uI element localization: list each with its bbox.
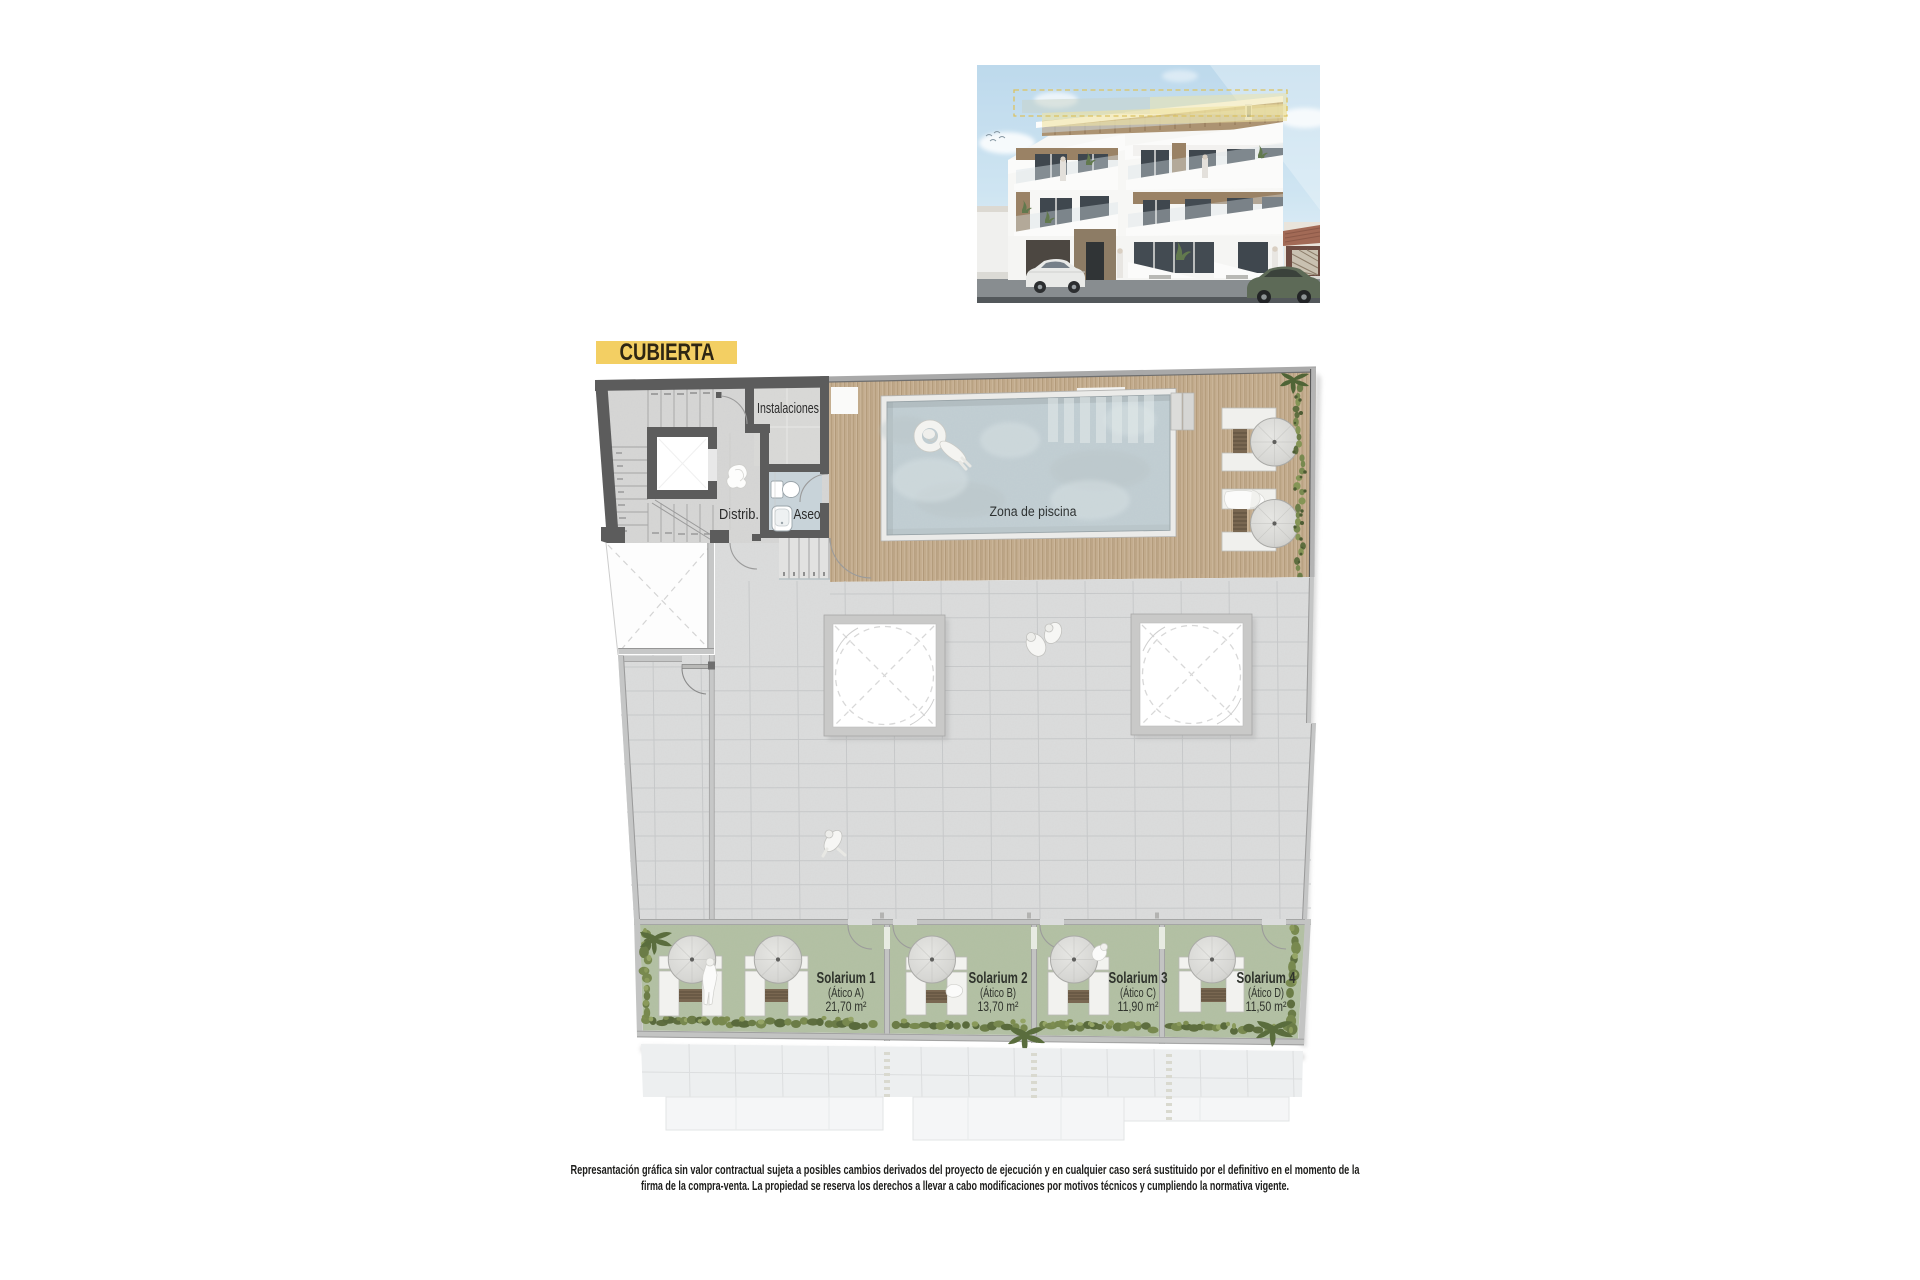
svg-text:(Ático A): (Ático A): [828, 985, 864, 1000]
svg-text:11,90 m²: 11,90 m²: [1118, 999, 1159, 1014]
svg-text:firma de la compra-venta. La p: firma de la compra-venta. La propiedad s…: [641, 1178, 1289, 1193]
svg-text:Distrib.: Distrib.: [719, 507, 759, 523]
svg-text:Solarium 1: Solarium 1: [817, 970, 876, 987]
svg-text:Solarium 4: Solarium 4: [1237, 970, 1296, 987]
svg-text:(Ático D): (Ático D): [1248, 985, 1284, 1000]
svg-text:11,50 m²: 11,50 m²: [1246, 999, 1287, 1014]
svg-text:Solarium 2: Solarium 2: [969, 970, 1028, 987]
svg-text:Instalaciones: Instalaciones: [757, 401, 819, 417]
svg-text:Aseo: Aseo: [794, 507, 821, 523]
svg-text:Solarium 3: Solarium 3: [1109, 970, 1168, 987]
svg-text:(Ático B): (Ático B): [980, 985, 1016, 1000]
svg-text:21,70 m²: 21,70 m²: [826, 999, 867, 1014]
svg-text:CUBIERTA: CUBIERTA: [620, 339, 715, 366]
svg-text:Zona de piscina: Zona de piscina: [990, 504, 1077, 519]
svg-text:Represantación gráfica sin val: Represantación gráfica sin valor contrac…: [571, 1162, 1360, 1177]
svg-text:(Ático C): (Ático C): [1120, 985, 1156, 1000]
svg-text:13,70 m²: 13,70 m²: [978, 999, 1019, 1014]
